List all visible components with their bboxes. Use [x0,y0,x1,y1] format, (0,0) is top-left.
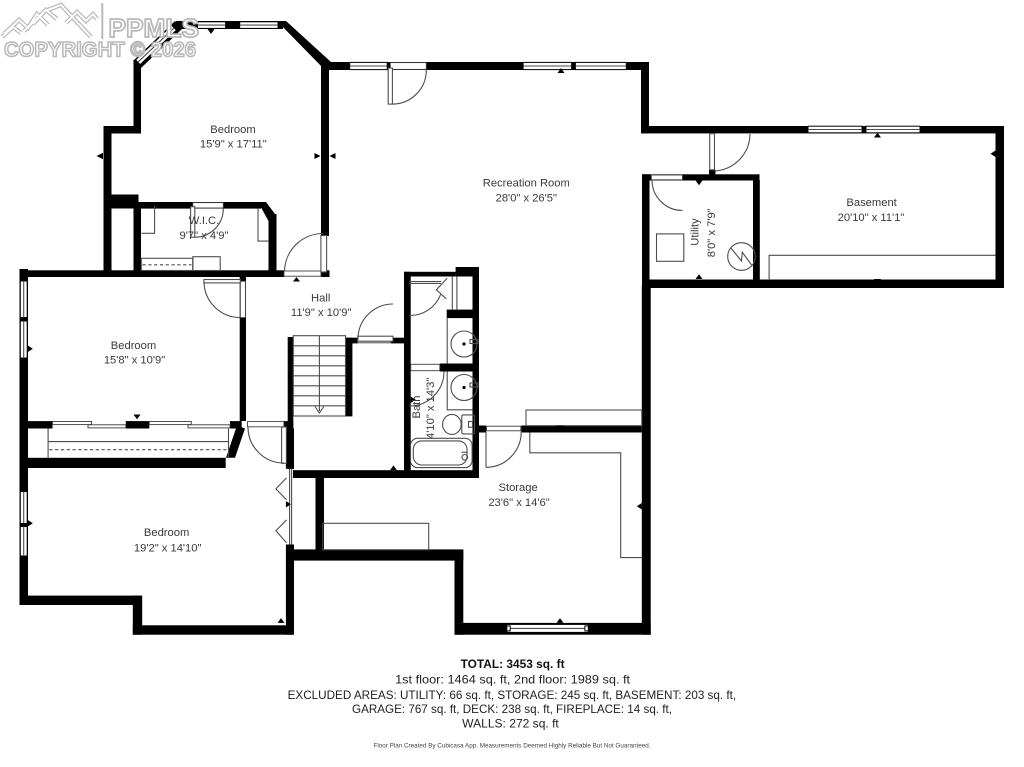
svg-text:Bedroom: Bedroom [210,124,255,136]
svg-text:Basement: Basement [846,197,897,209]
svg-text:11'9" x 10'9": 11'9" x 10'9" [291,307,352,319]
svg-text:GARAGE: 767 sq. ft, DECK: 238: GARAGE: 767 sq. ft, DECK: 238 sq. ft, FI… [352,702,672,716]
svg-text:15'8" x 10'9": 15'8" x 10'9" [104,355,165,367]
svg-text:19'2" x 14'10": 19'2" x 14'10" [134,543,202,555]
svg-text:Floor Plan Created By Cubicasa: Floor Plan Created By Cubicasa App. Meas… [374,742,651,749]
svg-text:W.I.C.: W.I.C. [189,215,219,227]
svg-text:Bedroom: Bedroom [144,527,189,539]
svg-text:COPYRIGHT © 2026: COPYRIGHT © 2026 [4,38,196,62]
svg-text:20'10" x 11'1": 20'10" x 11'1" [838,212,905,224]
svg-text:TOTAL: 3453 sq. ft: TOTAL: 3453 sq. ft [461,657,565,671]
svg-text:Utility: Utility [690,218,702,246]
svg-text:WALLS: 272 sq. ft: WALLS: 272 sq. ft [462,717,559,731]
svg-text:Storage: Storage [499,482,538,494]
svg-text:Bedroom: Bedroom [111,340,156,352]
svg-text:4'10" x 14'3": 4'10" x 14'3" [425,378,437,439]
svg-text:Hall: Hall [311,293,330,305]
svg-text:EXCLUDED AREAS: UTILITY: 66 sq: EXCLUDED AREAS: UTILITY: 66 sq. ft, STOR… [288,688,737,702]
svg-text:8'0" x 7'9": 8'0" x 7'9" [706,208,718,257]
svg-text:15'9" x 17'11": 15'9" x 17'11" [200,139,267,151]
svg-text:28'0" x 26'5": 28'0" x 26'5" [496,192,557,204]
svg-text:1st floor: 1464 sq. ft, 2nd fl: 1st floor: 1464 sq. ft, 2nd floor: 1989 … [395,672,631,686]
svg-text:Recreation Room: Recreation Room [483,177,570,189]
svg-text:Bath: Bath [411,395,423,418]
svg-text:9'7" x 4'9": 9'7" x 4'9" [180,230,229,242]
svg-text:23'6" x 14'6": 23'6" x 14'6" [488,497,549,509]
